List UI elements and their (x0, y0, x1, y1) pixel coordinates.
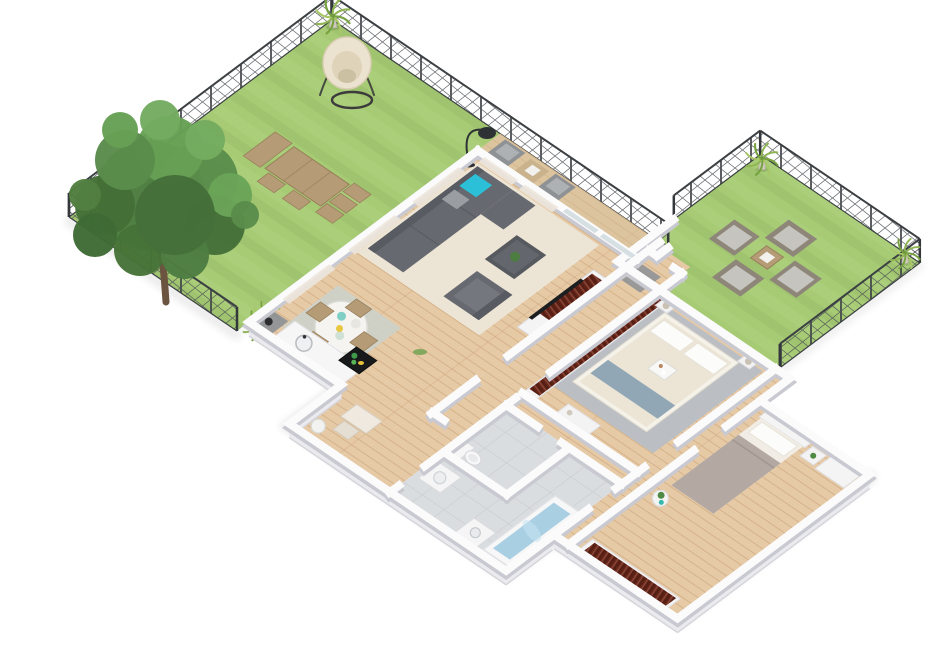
second-nightstand-plant (810, 453, 816, 459)
master-dresser-lamp (567, 410, 573, 416)
dining-flowers (336, 325, 343, 332)
tree-canopy (140, 100, 180, 140)
second-side-table-cup (659, 500, 664, 505)
floor-lamp-shade (478, 127, 496, 139)
dining-plate-sage (335, 331, 344, 340)
aquarium-plant (351, 353, 357, 359)
kitchen-faucet (303, 335, 307, 339)
tree-canopy (73, 213, 117, 257)
second-side-table-plant (658, 492, 665, 499)
tree-canopy (69, 179, 101, 211)
wall-segment (649, 250, 654, 253)
scene-root (69, 0, 920, 633)
bathroom-sink-basin (470, 528, 480, 538)
tree-canopy (185, 120, 225, 160)
hanging-egg-chair-seat (338, 69, 356, 83)
aquarium-fish (358, 361, 364, 365)
pet-bowl (265, 318, 273, 326)
washer-door (434, 472, 446, 484)
tree-canopy (231, 201, 259, 229)
aquarium-plant-2 (351, 360, 356, 365)
tree-canopy (135, 175, 215, 255)
tray-plate (661, 370, 665, 374)
dining-greens (413, 349, 427, 355)
coffee-table-plant (510, 252, 520, 262)
tray-cup (659, 364, 663, 368)
tree-canopy (102, 112, 138, 148)
laundry-basket (311, 419, 325, 433)
floorplan-canvas (0, 0, 950, 671)
dining-plate-teal (337, 312, 346, 321)
dining-bowl (351, 319, 361, 329)
floorplan-3d-rendering (0, 0, 950, 671)
